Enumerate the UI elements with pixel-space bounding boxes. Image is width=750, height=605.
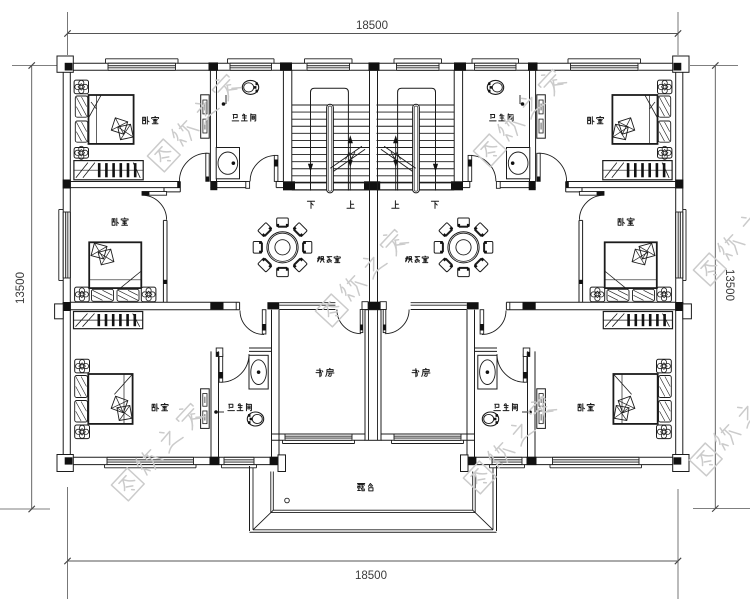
svg-text:13500: 13500 [15, 272, 27, 304]
svg-text:18500: 18500 [356, 20, 388, 32]
svg-text:18500: 18500 [355, 570, 387, 582]
svg-text:13500: 13500 [723, 269, 735, 301]
